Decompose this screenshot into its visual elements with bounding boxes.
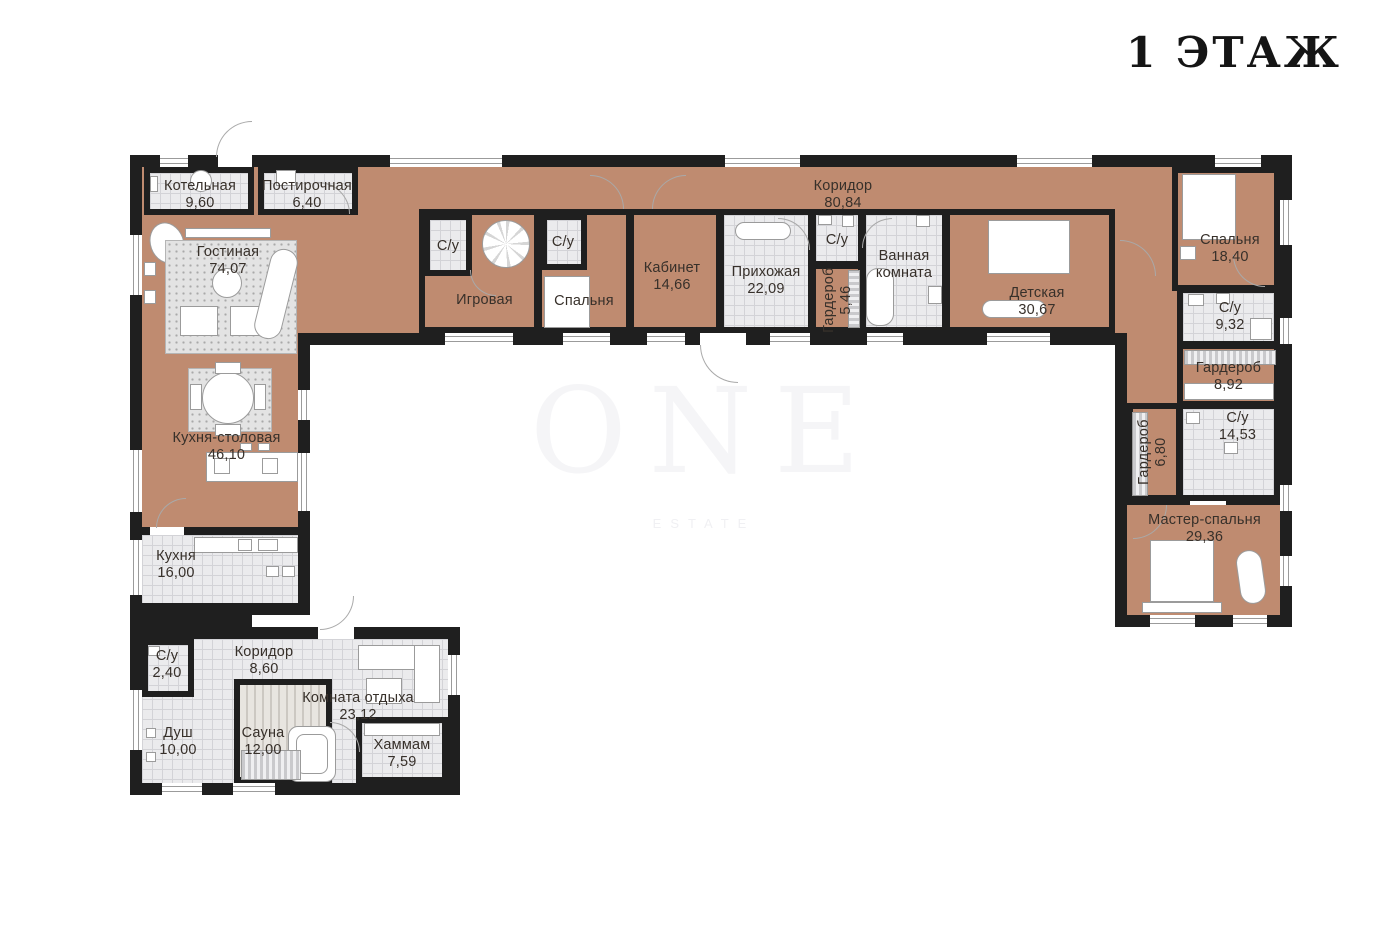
window xyxy=(1215,155,1261,167)
floor-plan: ONE ESTATE 1 ЭТАЖ xyxy=(0,0,1400,933)
dining-chair xyxy=(215,362,241,374)
door-arc xyxy=(320,596,354,630)
hammam-bench xyxy=(364,723,440,736)
spiral-stair xyxy=(482,220,530,268)
room-label-bedroom2: Спальня18,40 xyxy=(1170,232,1290,266)
toilet xyxy=(916,215,930,227)
bed-bench xyxy=(1142,602,1222,613)
window xyxy=(867,333,903,345)
kitchen-stove xyxy=(258,539,278,551)
window xyxy=(563,333,610,345)
room-label-game: Игровая xyxy=(432,292,537,309)
door-opening xyxy=(150,527,184,535)
sink xyxy=(818,215,832,225)
watermark-logo: ONE xyxy=(530,372,870,490)
window xyxy=(1280,556,1292,586)
window xyxy=(130,235,142,295)
tv-console xyxy=(185,228,271,238)
kitchen-appliance xyxy=(266,566,279,577)
room-label-wardrobe-892: Гардероб8,92 xyxy=(1166,360,1291,394)
window xyxy=(1280,485,1292,511)
room-label-wardrobe-680: Гардероб6,80 xyxy=(1136,416,1170,488)
window xyxy=(445,333,513,345)
window xyxy=(162,783,202,795)
toilet xyxy=(842,215,854,227)
room-label-su-bedroom: С/у xyxy=(540,234,586,251)
sink xyxy=(928,286,942,304)
room-label-su-932: С/у9,32 xyxy=(1190,300,1270,334)
window xyxy=(987,333,1050,345)
window xyxy=(233,783,275,795)
room-label-su-240: С/у2,40 xyxy=(136,648,198,682)
dining-chair xyxy=(254,384,266,410)
room-label-corridor-main: Коридор80,84 xyxy=(783,178,903,212)
window xyxy=(160,155,188,167)
room-label-su-hall: С/у xyxy=(812,232,862,249)
bed-bedroom2 xyxy=(1182,174,1236,240)
window xyxy=(1017,155,1092,167)
window xyxy=(1280,318,1292,344)
room-label-sauna: Сауна12,00 xyxy=(222,725,304,759)
room-label-kitchen-dining: Кухня-столовая46,10 xyxy=(144,430,309,464)
window xyxy=(130,450,142,512)
hall-bench xyxy=(735,222,791,240)
room-label-shower: Душ10,00 xyxy=(138,725,218,759)
window xyxy=(1233,615,1267,627)
wall-unit xyxy=(144,290,156,304)
room-label-hammam: Хаммам7,59 xyxy=(352,737,452,771)
room-label-su-1453: С/у14,53 xyxy=(1195,410,1280,444)
room-label-bedroom-small: Спальня xyxy=(534,293,634,310)
window xyxy=(647,333,685,345)
window xyxy=(298,390,310,420)
room-label-master: Мастер-спальня29,36 xyxy=(1122,512,1287,546)
watermark-estate: ESTATE xyxy=(614,516,794,531)
window xyxy=(770,333,810,345)
door-opening xyxy=(700,333,746,345)
room-label-wardrobe-hall: Гардероб5,46 xyxy=(821,264,855,336)
wall-unit xyxy=(144,262,156,276)
room-label-lounge: Комната отдыха23,12 xyxy=(284,690,432,724)
window xyxy=(725,155,800,167)
room-label-children: Детская30,67 xyxy=(977,285,1097,319)
dining-chair xyxy=(190,384,202,410)
room-label-su-game: С/у xyxy=(426,238,470,255)
room-label-corridor-spa: Коридор8,60 xyxy=(204,644,324,678)
dining-table xyxy=(202,372,254,424)
bed-master xyxy=(1150,540,1214,602)
wall-connector xyxy=(130,615,252,627)
door-arc xyxy=(216,121,252,157)
room-label-kitchen: Кухня16,00 xyxy=(136,548,216,582)
kitchen-sink xyxy=(238,539,252,551)
room-label-boiler: Котельная9,60 xyxy=(145,178,255,212)
armchair xyxy=(180,306,218,336)
room-label-laundry: Постирочная6,40 xyxy=(252,178,362,212)
room-label-hallway: Прихожая22,09 xyxy=(706,264,826,298)
kitchen-appliance xyxy=(282,566,295,577)
room-label-bathroom: Ванная комната xyxy=(866,248,942,282)
page-title: 1 ЭТАЖ xyxy=(1126,28,1342,77)
window xyxy=(390,155,502,167)
room-label-living: Гостиная74,07 xyxy=(166,244,290,278)
window xyxy=(1150,615,1195,627)
bed-children xyxy=(988,220,1070,274)
window xyxy=(448,655,460,695)
